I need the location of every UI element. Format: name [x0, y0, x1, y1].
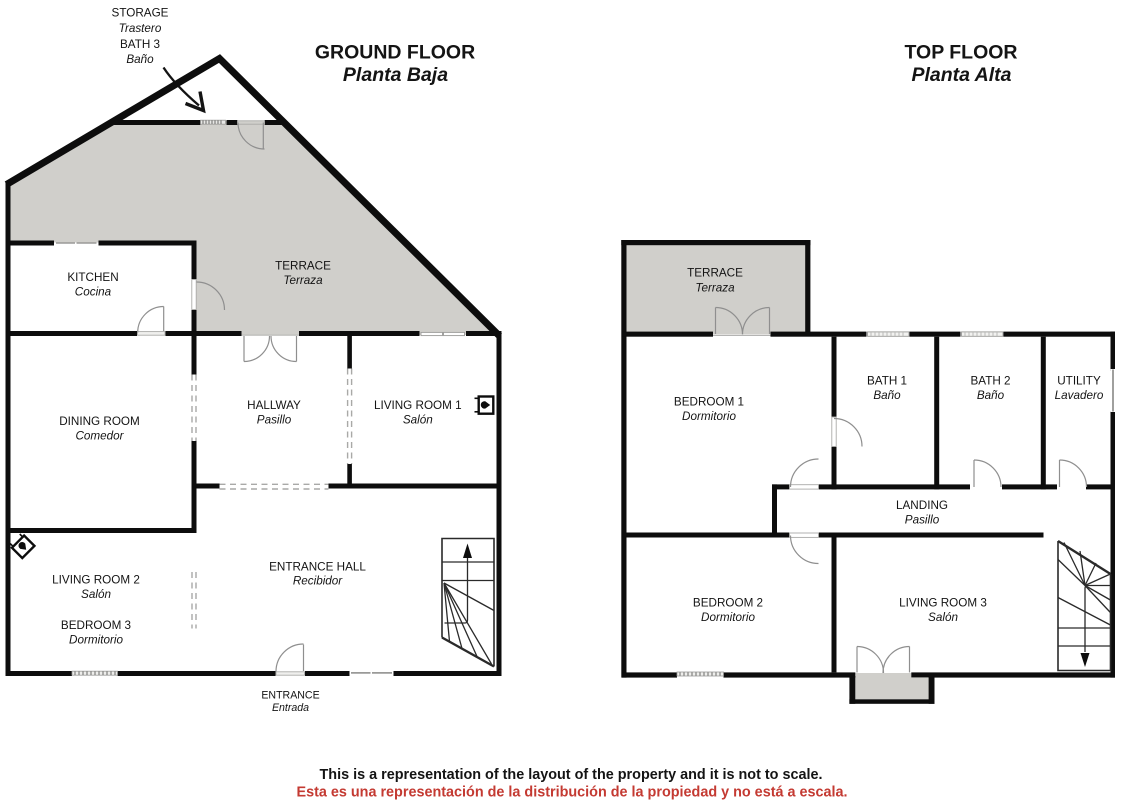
svg-text:Trastero: Trastero: [119, 22, 162, 35]
svg-text:Esta es una representación de: Esta es una representación de la distrib…: [296, 785, 847, 801]
svg-text:Baño: Baño: [126, 53, 154, 66]
svg-text:LIVING ROOM 3: LIVING ROOM 3: [899, 597, 987, 610]
svg-text:Entrada: Entrada: [272, 702, 309, 714]
svg-text:BATH 1: BATH 1: [867, 374, 907, 387]
svg-text:Salón: Salón: [403, 414, 433, 427]
svg-text:TERRACE: TERRACE: [687, 267, 743, 280]
svg-text:Planta Alta: Planta Alta: [911, 64, 1011, 86]
svg-text:Cocina: Cocina: [75, 286, 112, 299]
svg-text:Baño: Baño: [873, 389, 901, 402]
svg-text:STORAGE: STORAGE: [112, 6, 169, 19]
svg-text:TERRACE: TERRACE: [275, 260, 331, 273]
svg-text:UTILITY: UTILITY: [1057, 374, 1101, 387]
svg-text:Dormitorio: Dormitorio: [701, 611, 755, 624]
svg-text:Baño: Baño: [977, 389, 1005, 402]
svg-text:Terraza: Terraza: [695, 282, 735, 295]
svg-text:This is a representation of th: This is a representation of the layout o…: [320, 767, 823, 783]
svg-text:Terraza: Terraza: [283, 274, 323, 287]
svg-text:LANDING: LANDING: [896, 499, 948, 512]
svg-text:Pasillo: Pasillo: [905, 514, 940, 527]
svg-text:Salón: Salón: [928, 611, 958, 624]
svg-text:BEDROOM 1: BEDROOM 1: [674, 395, 744, 408]
svg-text:TOP FLOOR: TOP FLOOR: [904, 42, 1017, 64]
svg-text:BATH 3: BATH 3: [120, 38, 160, 51]
svg-text:KITCHEN: KITCHEN: [67, 271, 118, 284]
svg-text:Pasillo: Pasillo: [257, 414, 292, 427]
svg-text:Salón: Salón: [81, 588, 111, 601]
svg-text:Recibidor: Recibidor: [293, 575, 343, 588]
svg-text:LIVING ROOM 1: LIVING ROOM 1: [374, 399, 462, 412]
svg-text:Lavadero: Lavadero: [1055, 389, 1104, 402]
svg-text:GROUND FLOOR: GROUND FLOOR: [315, 42, 475, 64]
svg-text:LIVING ROOM 2: LIVING ROOM 2: [52, 574, 140, 587]
svg-text:ENTRANCE: ENTRANCE: [261, 690, 319, 702]
svg-text:Dormitorio: Dormitorio: [682, 410, 736, 423]
svg-text:HALLWAY: HALLWAY: [247, 399, 301, 412]
svg-text:DINING ROOM: DINING ROOM: [59, 415, 140, 428]
svg-text:BATH 2: BATH 2: [970, 374, 1010, 387]
svg-text:BEDROOM 3: BEDROOM 3: [61, 619, 131, 632]
svg-text:Comedor: Comedor: [75, 430, 124, 443]
svg-text:ENTRANCE HALL: ENTRANCE HALL: [269, 561, 366, 574]
svg-text:Planta Baja: Planta Baja: [343, 64, 448, 86]
svg-text:Dormitorio: Dormitorio: [69, 633, 123, 646]
svg-text:BEDROOM 2: BEDROOM 2: [693, 597, 763, 610]
